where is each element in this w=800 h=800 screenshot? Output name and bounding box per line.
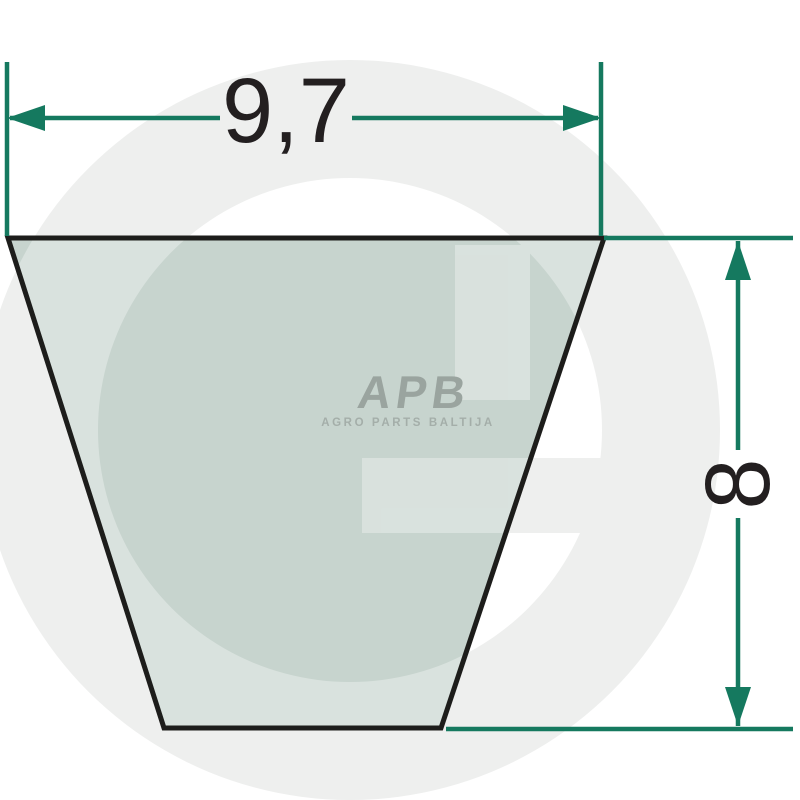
product-diagram: APB AGRO PARTS BALTIJA — [0, 0, 800, 800]
apb-logo-subtitle: AGRO PARTS BALTIJA — [321, 417, 495, 429]
height-dimension-label: 8 — [687, 458, 789, 509]
apb-logo-abbr: APB — [355, 366, 474, 418]
width-dimension-label: 9,7 — [222, 60, 350, 162]
belt-diagram-canvas: APB AGRO PARTS BALTIJA — [0, 0, 800, 800]
